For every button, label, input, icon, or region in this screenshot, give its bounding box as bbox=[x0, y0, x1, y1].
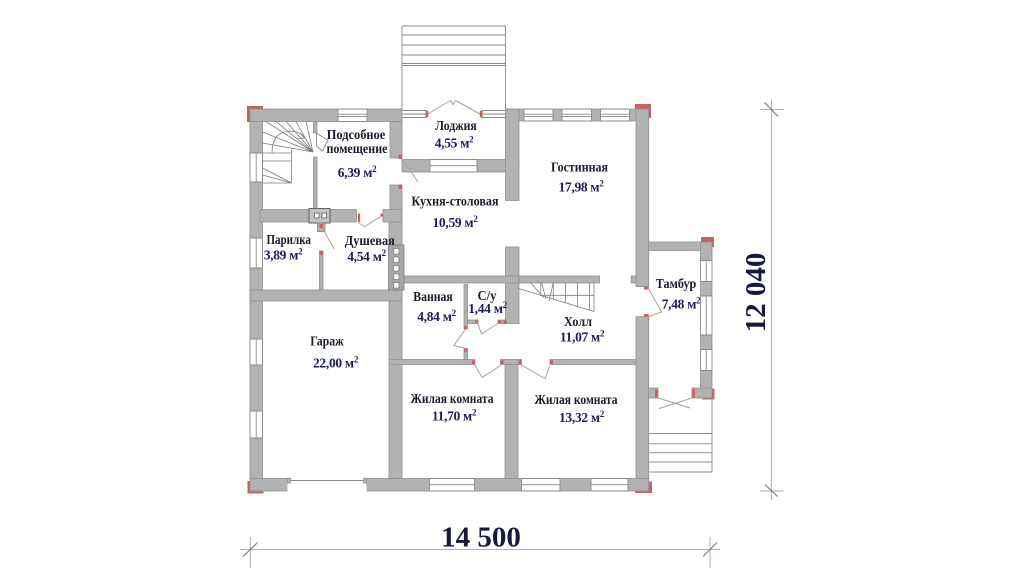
svg-text:Гараж: Гараж bbox=[310, 335, 344, 350]
svg-text:Кухня-столовая: Кухня-столовая bbox=[412, 195, 499, 210]
svg-text:11,07 м2: 11,07 м2 bbox=[560, 329, 605, 345]
svg-text:6,39 м2: 6,39 м2 bbox=[338, 164, 377, 180]
svg-text:Гостинная: Гостинная bbox=[551, 161, 608, 176]
svg-text:17,98 м2: 17,98 м2 bbox=[558, 179, 604, 195]
svg-text:Лоджия: Лоджия bbox=[435, 119, 477, 134]
svg-text:1,44 м2: 1,44 м2 bbox=[468, 300, 507, 316]
svg-text:3,89 м2: 3,89 м2 bbox=[264, 247, 303, 263]
svg-text:Тамбур: Тамбур bbox=[656, 277, 697, 292]
svg-text:13,32 м2: 13,32 м2 bbox=[559, 409, 605, 425]
svg-text:Жилая комната: Жилая комната bbox=[411, 392, 494, 407]
svg-text:10,59 м2: 10,59 м2 bbox=[432, 214, 478, 230]
svg-text:4,55 м2: 4,55 м2 bbox=[435, 135, 474, 151]
svg-text:помещение: помещение bbox=[327, 142, 388, 157]
svg-text:7,48 м2: 7,48 м2 bbox=[662, 296, 701, 312]
svg-text:Парилка: Парилка bbox=[266, 233, 311, 248]
svg-text:Жилая комната: Жилая комната bbox=[535, 393, 618, 408]
svg-text:Душевая: Душевая bbox=[345, 234, 395, 249]
svg-text:4,84 м2: 4,84 м2 bbox=[417, 308, 456, 324]
svg-text:Подсобное: Подсобное bbox=[327, 128, 386, 143]
svg-text:11,70 м2: 11,70 м2 bbox=[432, 408, 477, 424]
svg-text:Ванная: Ванная bbox=[413, 290, 453, 305]
svg-text:12 040: 12 040 bbox=[740, 253, 772, 333]
svg-text:4,54 м2: 4,54 м2 bbox=[347, 248, 386, 264]
svg-text:Холл: Холл bbox=[564, 315, 592, 330]
svg-text:14 500: 14 500 bbox=[441, 522, 521, 554]
svg-text:22,00 м2: 22,00 м2 bbox=[313, 355, 359, 371]
